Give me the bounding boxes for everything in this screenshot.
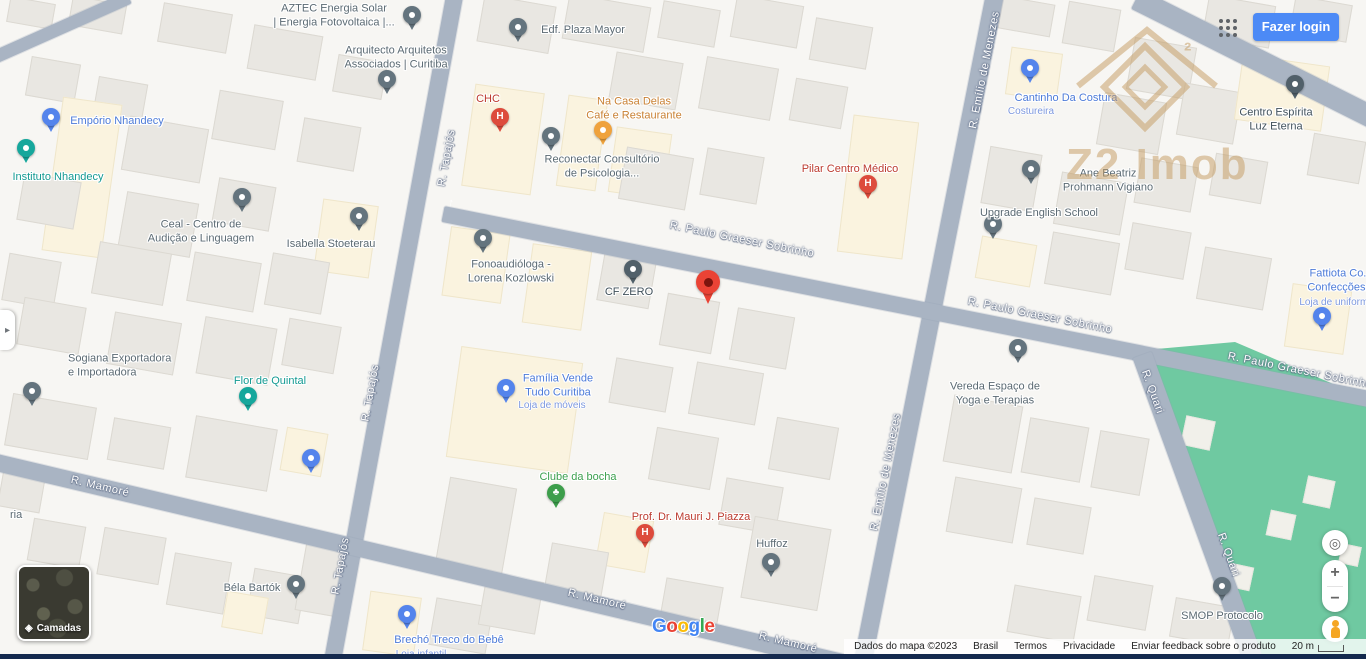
shopping-pin[interactable]: [302, 449, 320, 474]
layers-label: Camadas: [37, 623, 81, 634]
dot-icon: [308, 455, 314, 461]
prof-mauri-piazza-label: Prof. Dr. Mauri J. Piazza: [632, 511, 751, 525]
map-data-copyright: Dados do mapa ©2023: [854, 641, 957, 652]
login-button[interactable]: Fazer login: [1253, 13, 1339, 41]
na-casa-delas-restaurant-pin[interactable]: [594, 121, 612, 146]
building: [608, 357, 673, 412]
pilar-centro-medico-pin[interactable]: H: [859, 175, 877, 200]
feedback-link[interactable]: Enviar feedback sobre o produto: [1131, 641, 1276, 652]
centro-espirita-luz-eterna-label: Centro Espírita Luz Eterna: [1239, 106, 1312, 134]
building: [1302, 475, 1335, 508]
flor-de-quintal-label: Flor de Quintal: [234, 375, 306, 389]
dot-icon: [1292, 81, 1298, 87]
building: [186, 251, 262, 312]
google-letter: e: [704, 616, 714, 637]
chc-hospital-pin[interactable]: H: [491, 108, 509, 133]
building: [1090, 430, 1149, 496]
dot-icon: [548, 133, 554, 139]
chc-hospital-label: CHC: [476, 93, 500, 107]
building: [1266, 510, 1297, 541]
building: [809, 17, 874, 69]
building: [1026, 497, 1091, 554]
building: [1044, 231, 1120, 295]
building: [1307, 133, 1366, 185]
building: [946, 477, 1023, 544]
dot-icon: [245, 393, 251, 399]
hospital-icon: H: [864, 179, 871, 189]
terms-link[interactable]: Termos: [1014, 641, 1047, 652]
building: [211, 90, 284, 151]
familia-vende-tudo-pin[interactable]: [497, 379, 515, 404]
building: [1062, 1, 1122, 53]
fonoaudiologa-lorena-pin[interactable]: [474, 229, 492, 254]
dot-icon: [1319, 313, 1325, 319]
dot-icon: [503, 385, 509, 391]
google-letter: g: [689, 616, 700, 637]
scale-control: 20 m: [1292, 641, 1360, 652]
building: [657, 0, 721, 47]
selected-property-marker[interactable]: [695, 270, 721, 308]
sogiana-exportadora-pin[interactable]: [23, 382, 41, 407]
pilar-centro-medico-label: Pilar Centro Médico: [802, 163, 899, 177]
arquitecto-arquitetos-pin[interactable]: [378, 70, 396, 95]
building: [648, 427, 719, 490]
smop-protocolo-pin[interactable]: [1213, 577, 1231, 602]
cantinho-da-costura-sublabel: Costureira: [1008, 107, 1054, 117]
building: [1006, 584, 1081, 643]
google-letter: o: [666, 616, 677, 637]
building: [281, 318, 342, 374]
huffoz-pin[interactable]: [762, 553, 780, 578]
centro-espirita-luz-eterna-pin[interactable]: [1286, 75, 1304, 100]
instituto-nhandecy-label: Instituto Nhandecy: [12, 171, 103, 185]
sogiana-exportadora-label: Sogiana Exportadora e Importadora: [68, 352, 171, 380]
region-link[interactable]: Brasil: [973, 641, 998, 652]
building: [998, 0, 1056, 37]
ria-partial-label: ria: [10, 509, 22, 523]
map-attribution: Dados do mapa ©2023 Brasil Termos Privac…: [844, 639, 1366, 654]
cantinho-da-costura-label: Cantinho Da Costura: [1015, 92, 1118, 106]
zoom-in-button[interactable]: +: [1322, 561, 1348, 586]
bottom-border-strip: [0, 654, 1366, 659]
google-logo[interactable]: Google: [652, 616, 714, 638]
dot-icon: [293, 581, 299, 587]
brecho-treco-do-bebe-label: Brechó Treco do Bebê: [394, 634, 503, 648]
fattiota-confeccoes-sublabel: Loja de uniform...: [1299, 298, 1366, 308]
building: [730, 0, 804, 49]
isabella-stoeterau-pin[interactable]: [350, 207, 368, 232]
edf-plaza-mayor-pin[interactable]: [509, 18, 527, 43]
street-label: R. Tapajós: [436, 129, 457, 188]
building: [27, 518, 87, 570]
reconectar-psicologia-label: Reconectar Consultório de Psicologia...: [545, 153, 660, 181]
target-icon: ◎: [1329, 535, 1341, 552]
reconectar-psicologia-pin[interactable]: [542, 127, 560, 152]
dot-icon: [404, 611, 410, 617]
fonoaudiologa-lorena-label: Fonoaudióloga - Lorena Kozlowski: [468, 258, 554, 286]
building: [185, 415, 278, 491]
map-canvas[interactable]: R. TapajósR. TapajósR. TapajósR. Emílio …: [0, 0, 1366, 659]
emporio-nhandecy-pin[interactable]: [42, 108, 60, 133]
cf-zero-label: CF ZERO: [605, 286, 653, 300]
dot-icon: [600, 127, 606, 133]
fattiota-confeccoes-pin[interactable]: [1313, 307, 1331, 332]
fattiota-confeccoes-label: Fattiota Co... Confecções...: [1307, 267, 1366, 295]
bela-bartok-label: Béla Bartók: [224, 582, 281, 596]
arquitecto-arquitetos-label: Arquitecto Arquitetos Associados | Curit…: [344, 44, 447, 72]
flor-de-quintal-pin[interactable]: [239, 387, 257, 412]
vereda-yoga-label: Vereda Espaço de Yoga e Terapias: [950, 380, 1040, 408]
dot-icon: [630, 266, 636, 272]
aztec-energia-solar-pin[interactable]: [403, 6, 421, 31]
clube-da-bocha-label: Clube da bocha: [539, 471, 616, 485]
building: [166, 552, 232, 614]
building: [4, 393, 97, 460]
my-location-button[interactable]: ◎: [1322, 530, 1348, 556]
aztec-energia-solar-label: AZTEC Energia Solar | Energia Fotovoltai…: [273, 2, 394, 30]
vereda-yoga-pin[interactable]: [1009, 339, 1027, 364]
building: [297, 117, 362, 171]
building: [740, 516, 831, 611]
scale-bar: [1318, 645, 1344, 652]
dot-icon: [48, 114, 54, 120]
dot-icon: [480, 235, 486, 241]
google-apps-grid-icon[interactable]: [1219, 19, 1237, 37]
building: [264, 252, 330, 314]
building: [16, 297, 86, 355]
building: [107, 417, 172, 469]
layers-card[interactable]: ◈ Camadas: [17, 565, 91, 641]
familia-vende-tudo-sublabel: Loja de móveis: [518, 401, 585, 411]
building: [247, 24, 324, 80]
cf-zero-pin[interactable]: [624, 260, 642, 285]
marker-dot-icon: [704, 278, 713, 287]
na-casa-delas-restaurant-label: Na Casa Delas Café e Restaurante: [586, 95, 681, 123]
building: [96, 527, 166, 585]
dot-icon: [23, 145, 29, 151]
layers-icon: ◈: [25, 623, 33, 634]
building: [221, 591, 269, 635]
smop-protocolo-label: SMOP Protocolo: [1181, 610, 1263, 624]
dot-icon: [1028, 166, 1034, 172]
scale-label: 20 m: [1292, 641, 1314, 652]
dot-icon: [1015, 345, 1021, 351]
dot-icon: [768, 559, 774, 565]
cantinho-da-costura-pin[interactable]: [1021, 59, 1039, 84]
building: [729, 307, 795, 369]
building: [461, 84, 545, 196]
instituto-nhandecy-pin[interactable]: [17, 139, 35, 164]
building: [157, 2, 233, 54]
brecho-treco-do-bebe-pin[interactable]: [398, 605, 416, 630]
zoom-out-button[interactable]: −: [1322, 587, 1348, 612]
dot-icon: [356, 213, 362, 219]
building: [1021, 417, 1090, 483]
dot-icon: [515, 24, 521, 30]
building: [25, 56, 81, 104]
building: [688, 361, 764, 425]
emporio-nhandecy-label: Empório Nhandecy: [70, 115, 164, 129]
building: [1124, 222, 1191, 280]
dot-icon: [384, 76, 390, 82]
building: [91, 241, 172, 306]
clube-da-bocha-pin[interactable]: ♣: [547, 484, 565, 509]
dot-icon: [1027, 65, 1033, 71]
pegman-icon: [1332, 620, 1339, 627]
dot-icon: [409, 12, 415, 18]
bela-bartok-pin[interactable]: [287, 575, 305, 600]
ceal-audicao-linguagem-pin[interactable]: [233, 188, 251, 213]
street-label: R. Paulo Graeser Sobrinho: [669, 220, 815, 260]
privacy-link[interactable]: Privacidade: [1063, 641, 1115, 652]
google-letter: G: [652, 616, 666, 637]
ceal-audicao-linguagem-label: Ceal - Centro de Audição e Linguagem: [148, 218, 254, 246]
building: [698, 56, 779, 121]
upgrade-english-school-label: Upgrade English School: [980, 207, 1098, 221]
building: [837, 114, 919, 259]
ane-beatriz-prohmann-label: Ane Beatriz Prohmann Vigiano: [1063, 167, 1153, 195]
dot-icon: [990, 221, 996, 227]
hospital-icon: H: [496, 112, 503, 122]
prof-mauri-piazza-pin[interactable]: H: [636, 524, 654, 549]
building: [1176, 82, 1242, 144]
zoom-control: + −: [1322, 560, 1348, 612]
building: [1086, 575, 1153, 631]
dot-icon: [29, 388, 35, 394]
dot-icon: [1219, 583, 1225, 589]
familia-vende-tudo-label: Família Vende Tudo Curitiba: [523, 372, 593, 400]
building: [768, 417, 839, 480]
building: [975, 235, 1038, 287]
dot-icon: [239, 194, 245, 200]
chevron-right-icon: ▸: [5, 325, 10, 336]
building: [1209, 153, 1269, 205]
side-panel-toggle[interactable]: ▸: [0, 310, 15, 350]
ane-beatriz-prohmann-pin[interactable]: [1022, 160, 1040, 185]
edf-plaza-mayor-label: Edf. Plaza Mayor: [541, 24, 625, 38]
hospital-icon: H: [641, 528, 648, 538]
building: [699, 147, 764, 204]
tree-icon: ♣: [553, 488, 560, 498]
google-letter: o: [677, 616, 688, 637]
huffoz-label: Huffoz: [756, 538, 788, 552]
isabella-stoeterau-label: Isabella Stoeterau: [287, 238, 376, 252]
building: [1196, 246, 1272, 310]
building: [789, 78, 849, 130]
building: [522, 243, 593, 331]
